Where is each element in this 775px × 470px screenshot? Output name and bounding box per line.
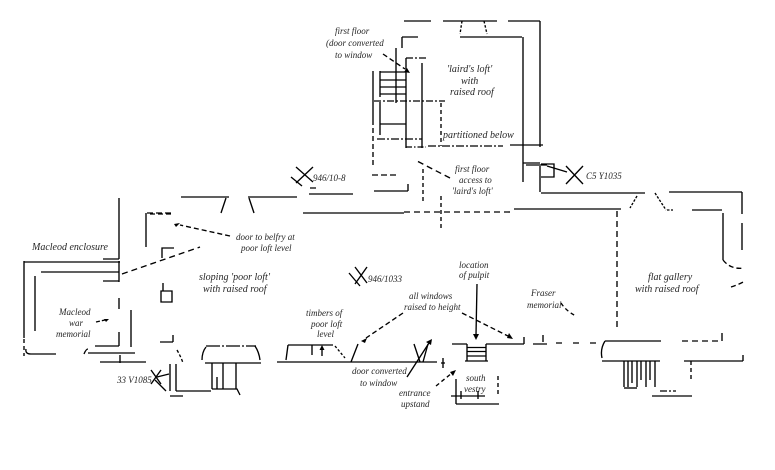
svg-text:'laird's loft': 'laird's loft' (452, 186, 494, 196)
svg-text:access to: access to (459, 175, 492, 185)
svg-text:vestry: vestry (464, 384, 486, 394)
svg-text:memorial: memorial (527, 300, 562, 310)
svg-text:poor loft level: poor loft level (240, 243, 292, 253)
svg-text:to window: to window (360, 378, 397, 388)
svg-text:with raised roof: with raised roof (203, 284, 268, 295)
svg-text:946/1033: 946/1033 (368, 274, 403, 284)
svg-text:first floor: first floor (455, 164, 490, 174)
svg-text:timbers of: timbers of (306, 308, 344, 318)
svg-text:with raised roof: with raised roof (635, 284, 700, 295)
svg-text:Macleod enclosure: Macleod enclosure (31, 242, 109, 253)
svg-text:memorial: memorial (56, 329, 91, 339)
svg-text:upstand: upstand (401, 399, 430, 409)
svg-text:flat gallery: flat gallery (648, 272, 693, 283)
svg-text:location: location (459, 260, 489, 270)
svg-text:Fraser: Fraser (530, 288, 556, 298)
svg-text:poor loft: poor loft (310, 319, 343, 329)
svg-text:33 V1085: 33 V1085 (116, 375, 152, 385)
svg-text:entrance: entrance (399, 388, 431, 398)
svg-text:south: south (466, 373, 486, 383)
svg-text:C5 Y1035: C5 Y1035 (586, 171, 622, 181)
svg-text:'laird's loft': 'laird's loft' (447, 64, 493, 75)
svg-text:Macleod: Macleod (58, 307, 91, 317)
svg-text:first floor: first floor (335, 26, 370, 36)
svg-text:raised to height: raised to height (404, 302, 461, 312)
svg-text:946/10-8: 946/10-8 (313, 173, 346, 183)
svg-text:door to belfry at: door to belfry at (236, 232, 295, 242)
svg-text:with: with (461, 76, 478, 87)
svg-text:to window: to window (335, 50, 372, 60)
svg-text:door converted: door converted (352, 366, 407, 376)
svg-text:raised roof: raised roof (450, 87, 495, 98)
svg-text:(door converted: (door converted (326, 38, 384, 48)
svg-text:sloping 'poor loft': sloping 'poor loft' (199, 272, 271, 283)
svg-text:all windows: all windows (409, 291, 453, 301)
svg-text:partitioned below: partitioned below (442, 130, 514, 141)
svg-text:level: level (317, 329, 334, 339)
svg-text:war: war (69, 318, 84, 328)
svg-text:of pulpit: of pulpit (459, 270, 490, 280)
